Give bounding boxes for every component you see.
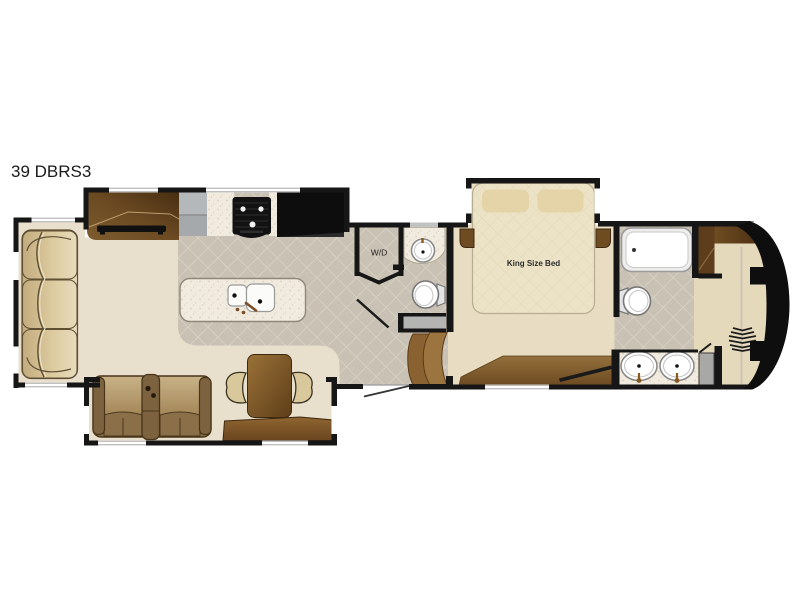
svg-text:King Size Bed: King Size Bed <box>507 259 560 268</box>
svg-text:W/D: W/D <box>371 248 388 258</box>
svg-text:39 DBRS3: 39 DBRS3 <box>11 162 91 181</box>
